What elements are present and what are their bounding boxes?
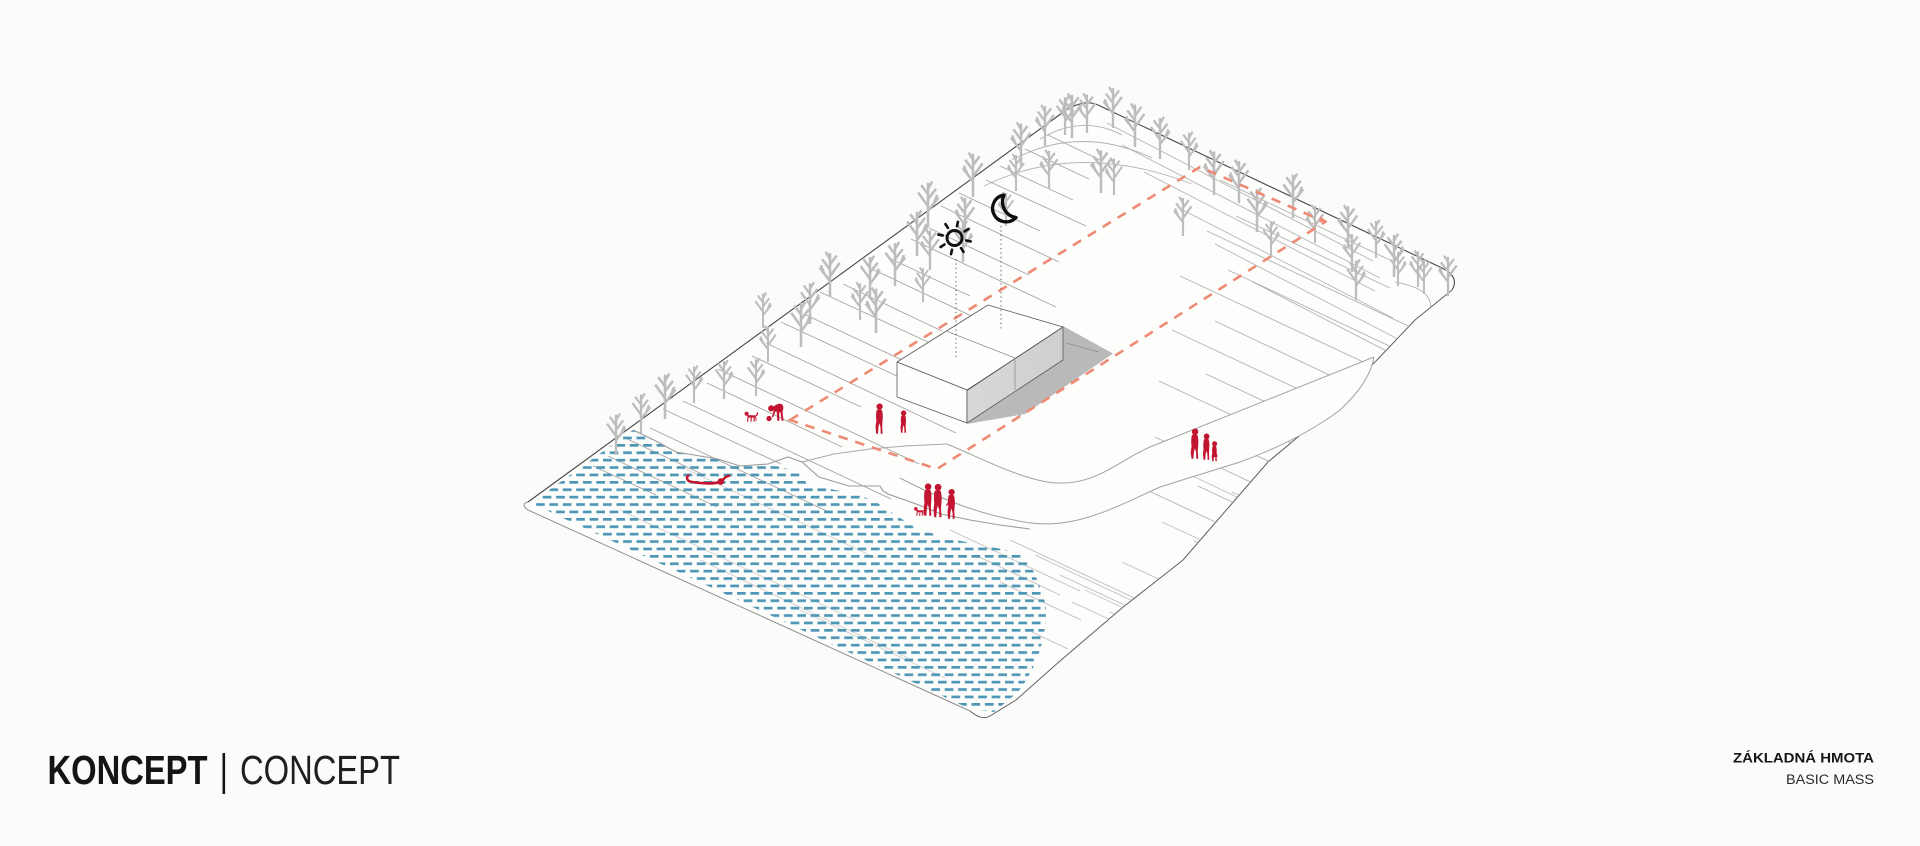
svg-text:CONCEPT: CONCEPT	[240, 747, 400, 793]
svg-text:BASIC MASS: BASIC MASS	[1786, 772, 1874, 788]
svg-text:KONCEPT: KONCEPT	[48, 747, 208, 793]
svg-text:ZÁKLADNÁ HMOTA: ZÁKLADNÁ HMOTA	[1733, 750, 1874, 767]
